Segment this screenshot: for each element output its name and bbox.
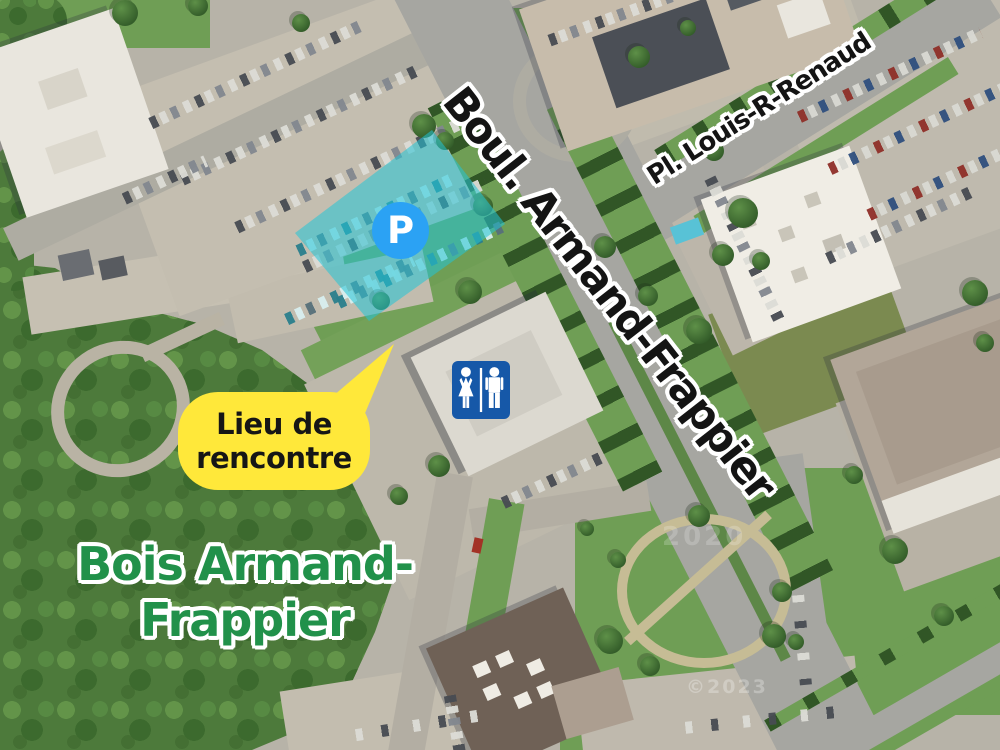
- tree: [680, 20, 696, 36]
- tree: [845, 466, 863, 484]
- tree: [610, 552, 626, 568]
- restroom-icon-glyph: [452, 361, 510, 419]
- tree: [292, 14, 310, 32]
- roof-detail: [38, 68, 87, 110]
- tree: [628, 46, 650, 68]
- tree: [934, 606, 954, 626]
- roof-detail: [472, 660, 491, 678]
- area-label-line2: Frappier: [30, 592, 460, 648]
- roof-detail: [513, 691, 532, 709]
- tree: [882, 538, 908, 564]
- tree: [728, 198, 758, 228]
- tree: [597, 628, 623, 654]
- callout-line1: Lieu de: [216, 407, 332, 441]
- roof-detail: [45, 130, 106, 174]
- parking-marker: P: [372, 202, 429, 259]
- copyright-watermark: ©2023: [686, 676, 768, 698]
- tree: [390, 487, 408, 505]
- tree: [752, 252, 770, 270]
- roof-detail: [791, 266, 809, 283]
- area-label: Bois Armand- Frappier: [30, 536, 460, 648]
- tree: [580, 522, 594, 536]
- tree: [762, 624, 786, 648]
- callout-bubble: Lieu de rencontre: [178, 392, 370, 490]
- restroom-icon: [452, 361, 510, 419]
- tree: [788, 634, 804, 650]
- tree: [976, 334, 994, 352]
- roof-detail: [777, 0, 831, 39]
- roof-detail: [526, 658, 545, 676]
- area-label-line1: Bois Armand-: [30, 536, 460, 592]
- tree: [686, 318, 712, 344]
- tree: [772, 582, 792, 602]
- tree: [112, 0, 138, 26]
- map-canvas[interactable]: P Boul. Armand-Frappier Pl. Louis-R-Rena…: [0, 0, 1000, 750]
- roof-detail: [495, 650, 514, 668]
- tree: [640, 656, 660, 676]
- tree: [712, 244, 734, 266]
- tree: [962, 280, 988, 306]
- parking-marker-letter: P: [387, 209, 414, 252]
- roof-detail: [482, 683, 501, 701]
- imagery-year-watermark: 2020: [662, 522, 746, 552]
- callout-line2: rencontre: [196, 441, 352, 475]
- roof-detail: [804, 191, 822, 208]
- roof-detail: [778, 225, 796, 242]
- tree: [458, 280, 482, 304]
- tree: [428, 455, 450, 477]
